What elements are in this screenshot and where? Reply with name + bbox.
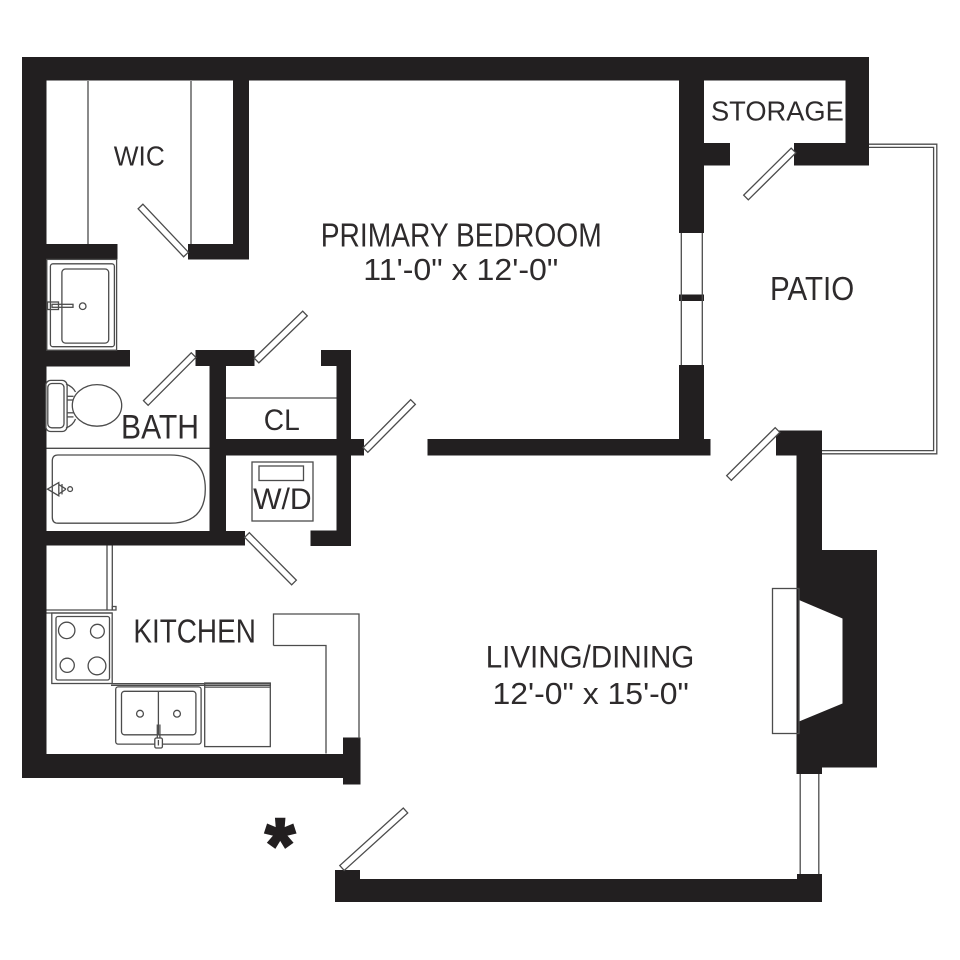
svg-text:PRIMARY BEDROOM: PRIMARY BEDROOM: [321, 217, 602, 254]
svg-text:11'-0" x 12'-0": 11'-0" x 12'-0": [363, 252, 558, 287]
svg-text:KITCHEN: KITCHEN: [133, 613, 256, 650]
svg-text:W/D: W/D: [253, 483, 312, 516]
svg-text:WIC: WIC: [114, 141, 165, 172]
svg-text:CL: CL: [264, 404, 300, 437]
svg-text:STORAGE: STORAGE: [711, 96, 844, 127]
svg-text:LIVING/DINING: LIVING/DINING: [486, 638, 695, 674]
svg-text:PATIO: PATIO: [770, 270, 854, 307]
svg-text:12'-0" x 15'-0": 12'-0" x 15'-0": [493, 676, 689, 711]
svg-text:BATH: BATH: [121, 408, 199, 446]
